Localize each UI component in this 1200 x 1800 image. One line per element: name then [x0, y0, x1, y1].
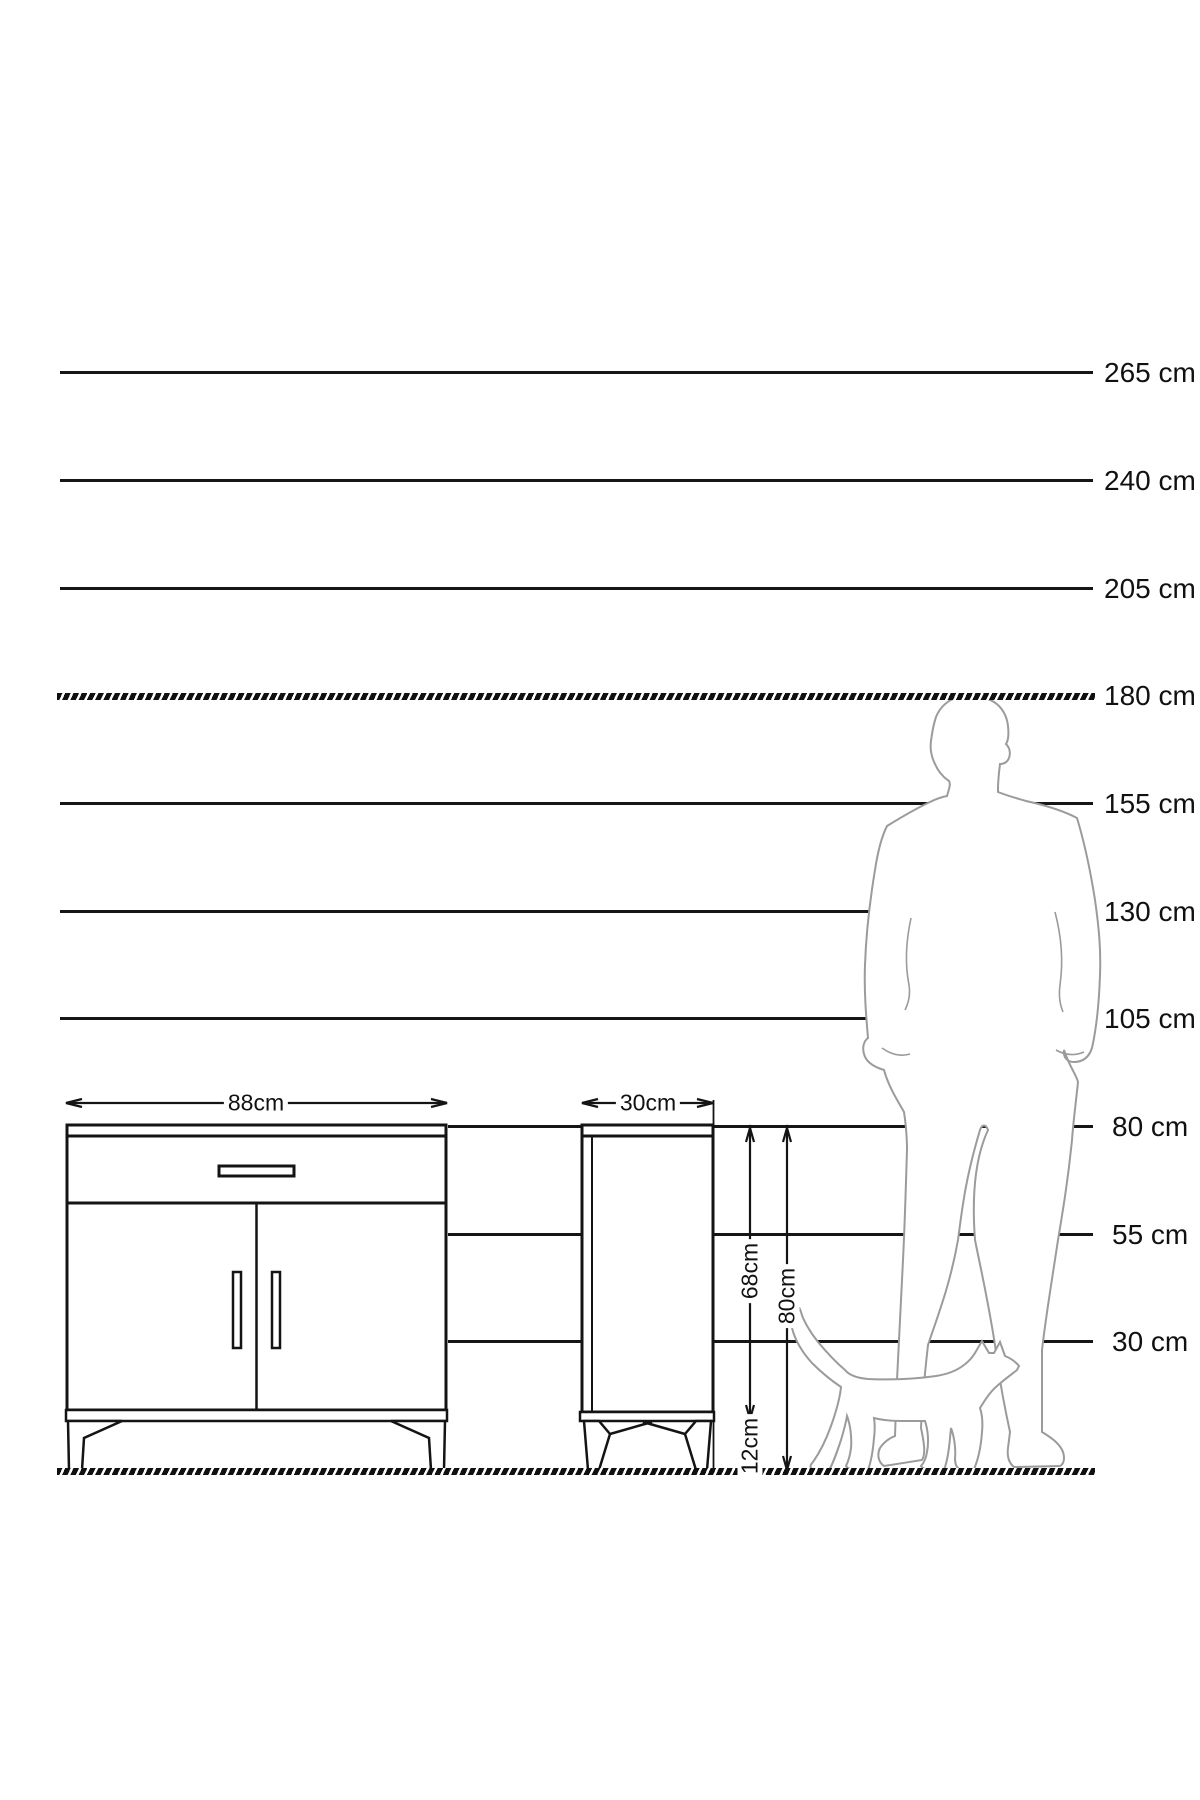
- scale-label-155: 155 cm: [1104, 789, 1196, 819]
- scale-label-180: 180 cm: [1104, 681, 1196, 711]
- scale-label-240: 240 cm: [1104, 466, 1196, 496]
- scale-label-30: 30 cm: [1112, 1327, 1188, 1357]
- dim-label-side-depth: 30cm: [616, 1091, 680, 1116]
- scale-label-80: 80 cm: [1112, 1112, 1188, 1142]
- dim-label-body-height: 68cm: [738, 1239, 763, 1303]
- scale-label-205: 205 cm: [1104, 574, 1196, 604]
- scale-label-105: 105 cm: [1104, 1004, 1196, 1034]
- scale-label-265: 265 cm: [1104, 358, 1196, 388]
- dim-label-total-height: 80cm: [775, 1264, 800, 1328]
- dimension-layer: [0, 0, 1200, 1800]
- dim-label-front-width: 88cm: [224, 1091, 288, 1116]
- dimension-lines: [66, 1099, 791, 1471]
- scale-label-130: 130 cm: [1104, 897, 1196, 927]
- diagram-canvas: 265 cm 240 cm 205 cm 180 cm 155 cm 130 c…: [0, 0, 1200, 1800]
- dim-label-leg-height: 12cm: [738, 1414, 763, 1478]
- scale-label-55: 55 cm: [1112, 1220, 1188, 1250]
